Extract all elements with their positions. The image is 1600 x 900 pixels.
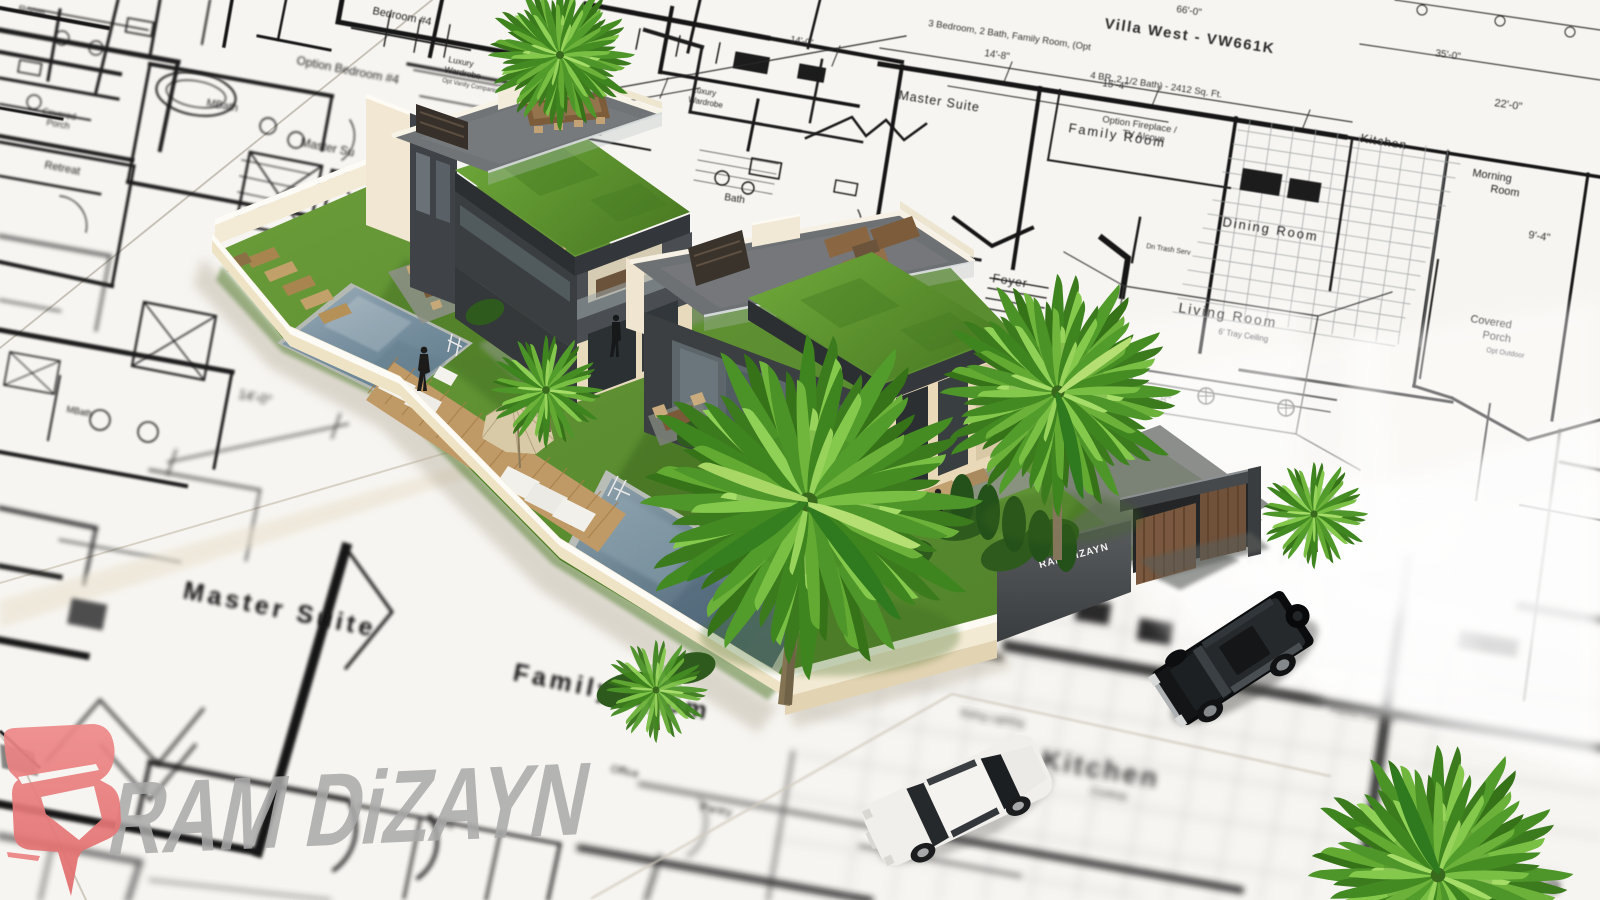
svg-text:RAM DiZAYN: RAM DiZAYN xyxy=(99,740,600,877)
